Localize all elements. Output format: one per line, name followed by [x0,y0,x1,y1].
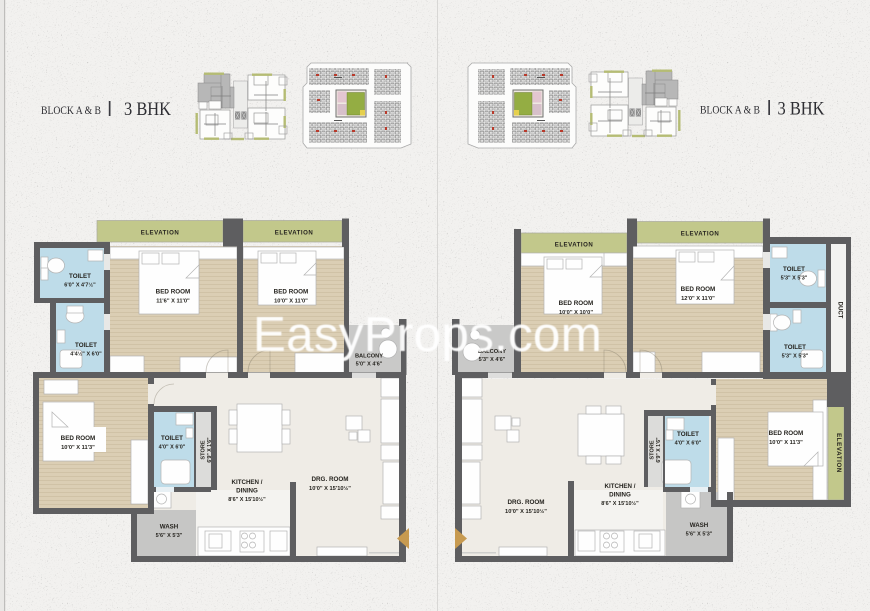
svg-text:WASH: WASH [690,522,709,529]
svg-text:STORE: STORE [650,440,656,459]
svg-text:TOILET: TOILET [69,273,91,280]
svg-text:BED ROOM: BED ROOM [274,289,309,296]
svg-text:5'6" X 5'3": 5'6" X 5'3" [156,533,183,539]
svg-text:BED ROOM: BED ROOM [559,300,594,307]
svg-text:5'0" X 4'6": 5'0" X 4'6" [356,362,383,368]
svg-text:6'9" X 1'6": 6'9" X 1'6" [656,437,662,463]
svg-text:5'3" X 5'3": 5'3" X 5'3" [782,354,809,360]
svg-text:10'0" X 11'0": 10'0" X 11'0" [274,299,308,305]
svg-text:5'6" X 5'3": 5'6" X 5'3" [686,532,713,538]
svg-text:8'6" X 15'10½": 8'6" X 15'10½" [601,500,639,507]
svg-text:TOILET: TOILET [784,344,806,351]
svg-text:ELEVATION: ELEVATION [835,433,842,473]
svg-text:DINING: DINING [609,492,631,499]
svg-text:TOILET: TOILET [783,266,805,273]
svg-text:8'6" X 15'10½": 8'6" X 15'10½" [228,496,266,503]
svg-text:5'3" X 5'3": 5'3" X 5'3" [781,276,808,282]
svg-text:BED ROOM: BED ROOM [681,286,716,293]
svg-text:11'6" X 11'0": 11'6" X 11'0" [156,299,190,305]
svg-text:4'0" X 6'0": 4'0" X 6'0" [675,441,702,447]
svg-text:12'0" X 11'0": 12'0" X 11'0" [681,296,715,302]
svg-text:ELEVATION: ELEVATION [681,231,719,238]
svg-text:10'0" X 11'3": 10'0" X 11'3" [769,440,803,446]
svg-text:BED ROOM: BED ROOM [61,435,96,442]
svg-text:DRG. ROOM: DRG. ROOM [507,499,544,506]
svg-text:TOILET: TOILET [677,431,699,438]
svg-text:DRG. ROOM: DRG. ROOM [311,476,348,483]
svg-text:DINING: DINING [236,488,258,495]
svg-text:WASH: WASH [160,524,179,531]
svg-text:BED ROOM: BED ROOM [156,289,191,296]
svg-text:STORE: STORE [201,440,207,459]
svg-text:KITCHEN /: KITCHEN / [232,479,263,486]
svg-text:DUCT: DUCT [837,302,843,319]
svg-text:EasyProps.com: EasyProps.com [253,307,602,362]
svg-text:TOILET: TOILET [75,342,97,349]
svg-text:ELEVATION: ELEVATION [555,242,593,249]
svg-text:6'9" X 1'6": 6'9" X 1'6" [207,437,213,463]
svg-text:ELEVATION: ELEVATION [275,230,313,237]
svg-text:TOILET: TOILET [161,435,183,442]
svg-text:10'0" X 15'10½": 10'0" X 15'10½" [505,508,547,515]
svg-text:10'0" X 11'3": 10'0" X 11'3" [61,445,95,451]
svg-text:10'0" X 15'10½": 10'0" X 15'10½" [309,485,351,492]
svg-text:KITCHEN /: KITCHEN / [605,483,636,490]
svg-text:4'0" X 6'0": 4'0" X 6'0" [159,445,186,451]
svg-text:4'4½" X 6'0": 4'4½" X 6'0" [70,351,102,358]
svg-text:ELEVATION: ELEVATION [141,230,179,237]
svg-text:BED ROOM: BED ROOM [769,430,804,437]
svg-text:6'0" X 4'7½": 6'0" X 4'7½" [64,282,96,289]
